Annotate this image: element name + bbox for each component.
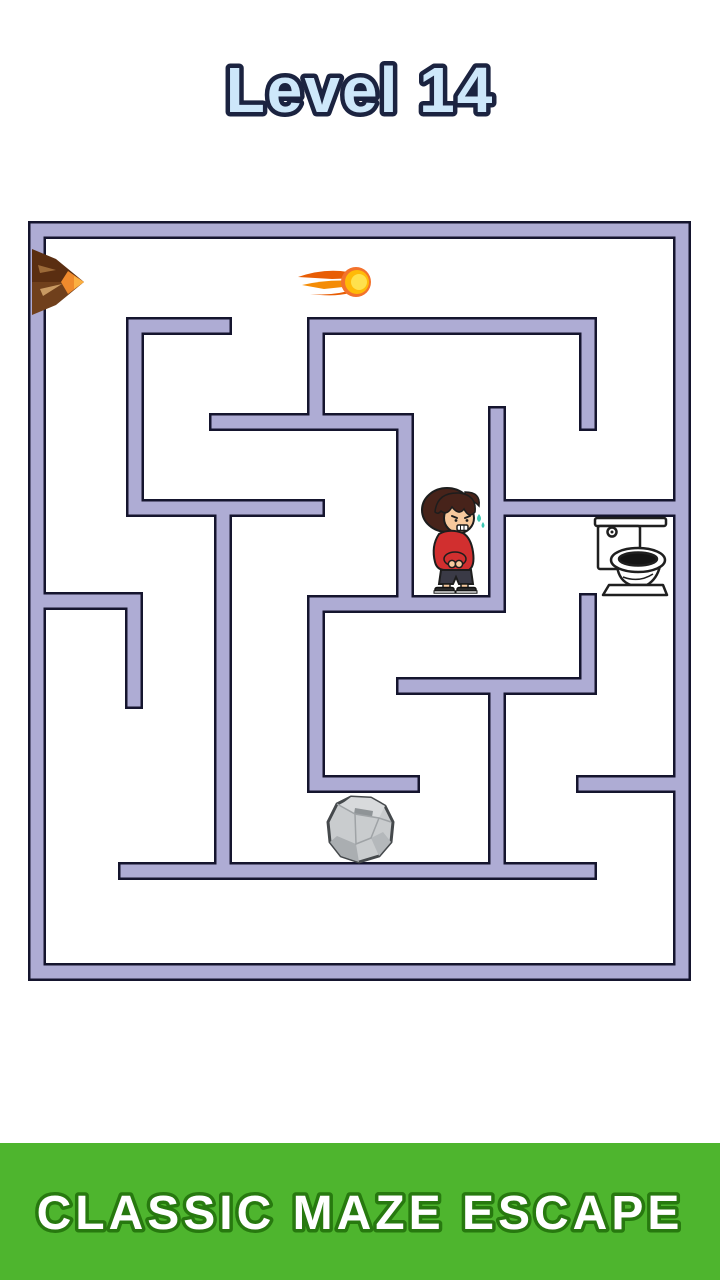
banner-title-text: CLASSIC MAZE ESCAPE xyxy=(37,1187,684,1240)
player-character[interactable] xyxy=(419,486,489,594)
banner: CLASSIC MAZE ESCAPE xyxy=(0,1143,720,1280)
maze-board[interactable] xyxy=(0,0,720,1280)
volcano-icon xyxy=(30,249,88,315)
rock-obstacle xyxy=(325,794,397,864)
fireball-icon xyxy=(296,264,376,300)
toilet-goal[interactable] xyxy=(589,515,669,601)
